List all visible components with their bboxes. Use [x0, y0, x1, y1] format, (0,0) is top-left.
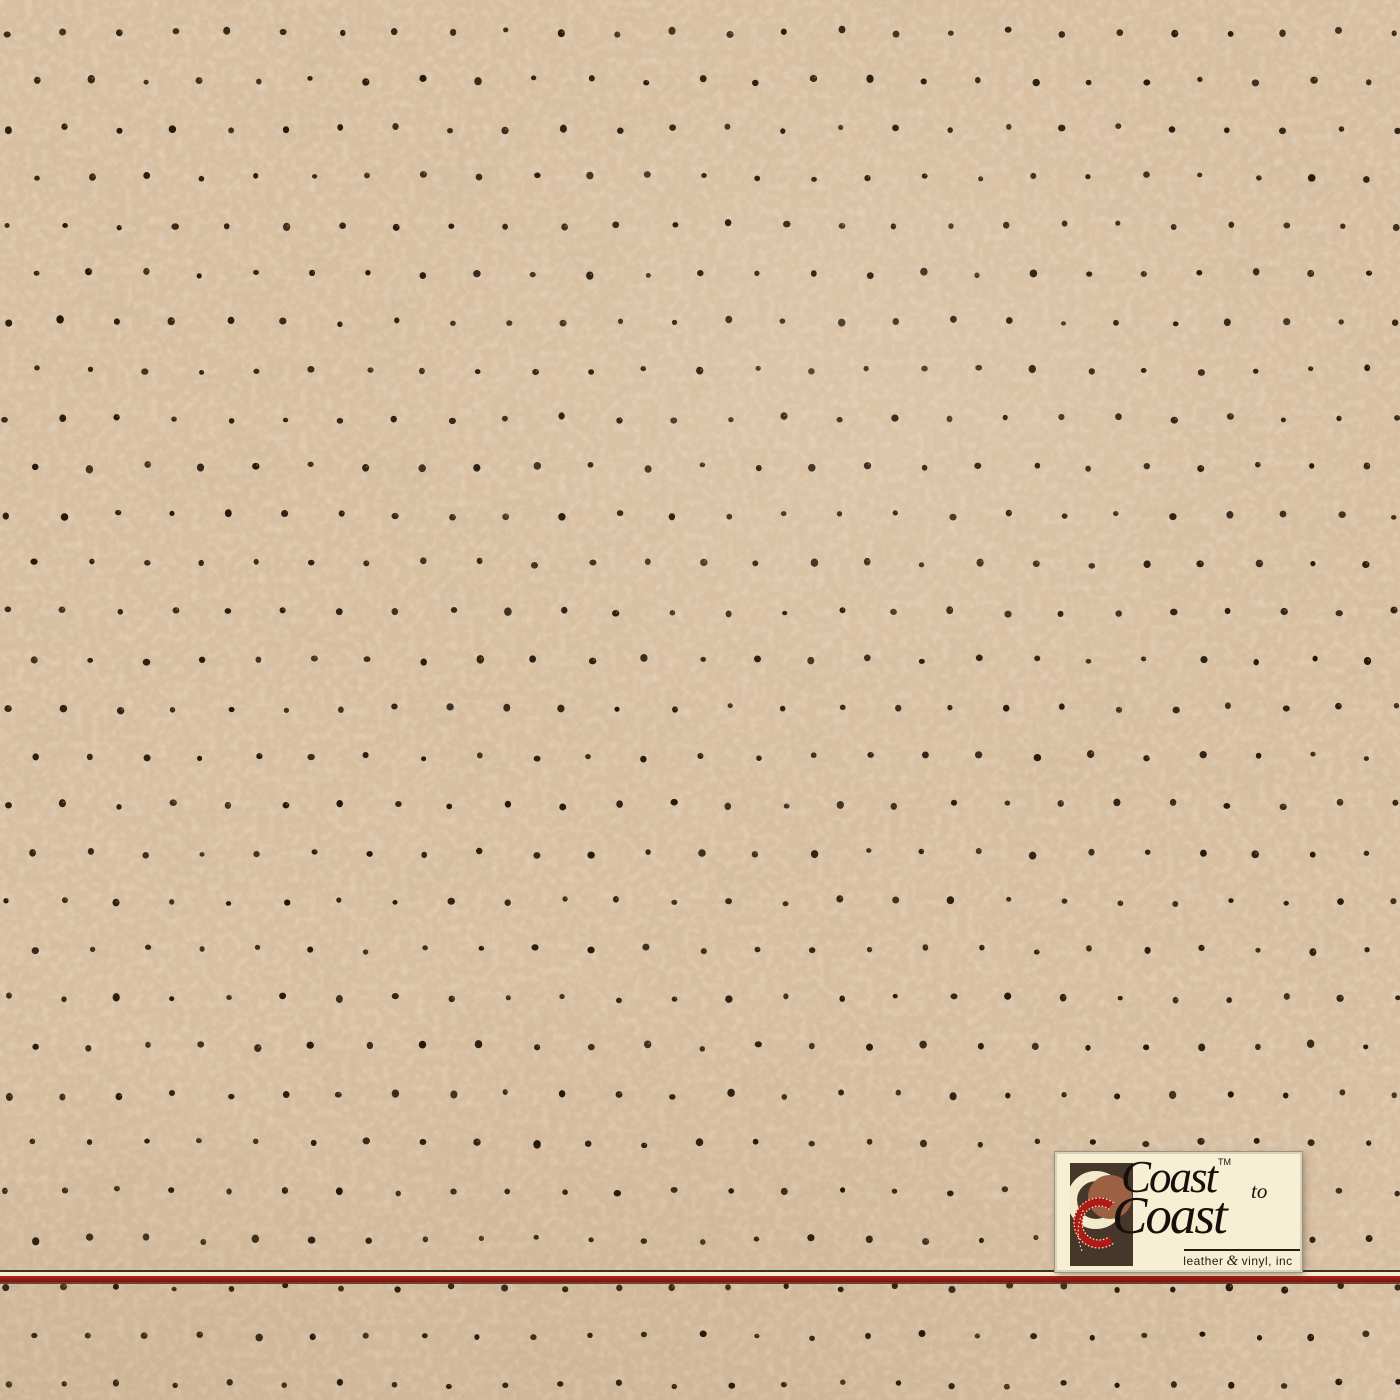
logo-word-to: to — [1251, 1181, 1267, 1202]
tagline-leather: leather — [1183, 1254, 1223, 1268]
leather-swatch: CoastTM to Coast leather & vinyl, inc — [0, 0, 1400, 1400]
tagline-vinyl: vinyl, inc — [1242, 1254, 1293, 1268]
brand-stripe — [0, 1270, 1400, 1284]
trademark-symbol: TM — [1218, 1157, 1231, 1167]
coast-to-coast-logo: CoastTM to Coast leather & vinyl, inc — [1055, 1152, 1302, 1272]
tagline-ampersand: & — [1227, 1253, 1239, 1270]
stripe-shadow — [0, 1282, 1400, 1284]
logo-tagline: leather & vinyl, inc — [1175, 1253, 1301, 1270]
logo-word-coast-bottom: Coast — [1112, 1190, 1226, 1243]
logo-rule — [1184, 1249, 1300, 1251]
